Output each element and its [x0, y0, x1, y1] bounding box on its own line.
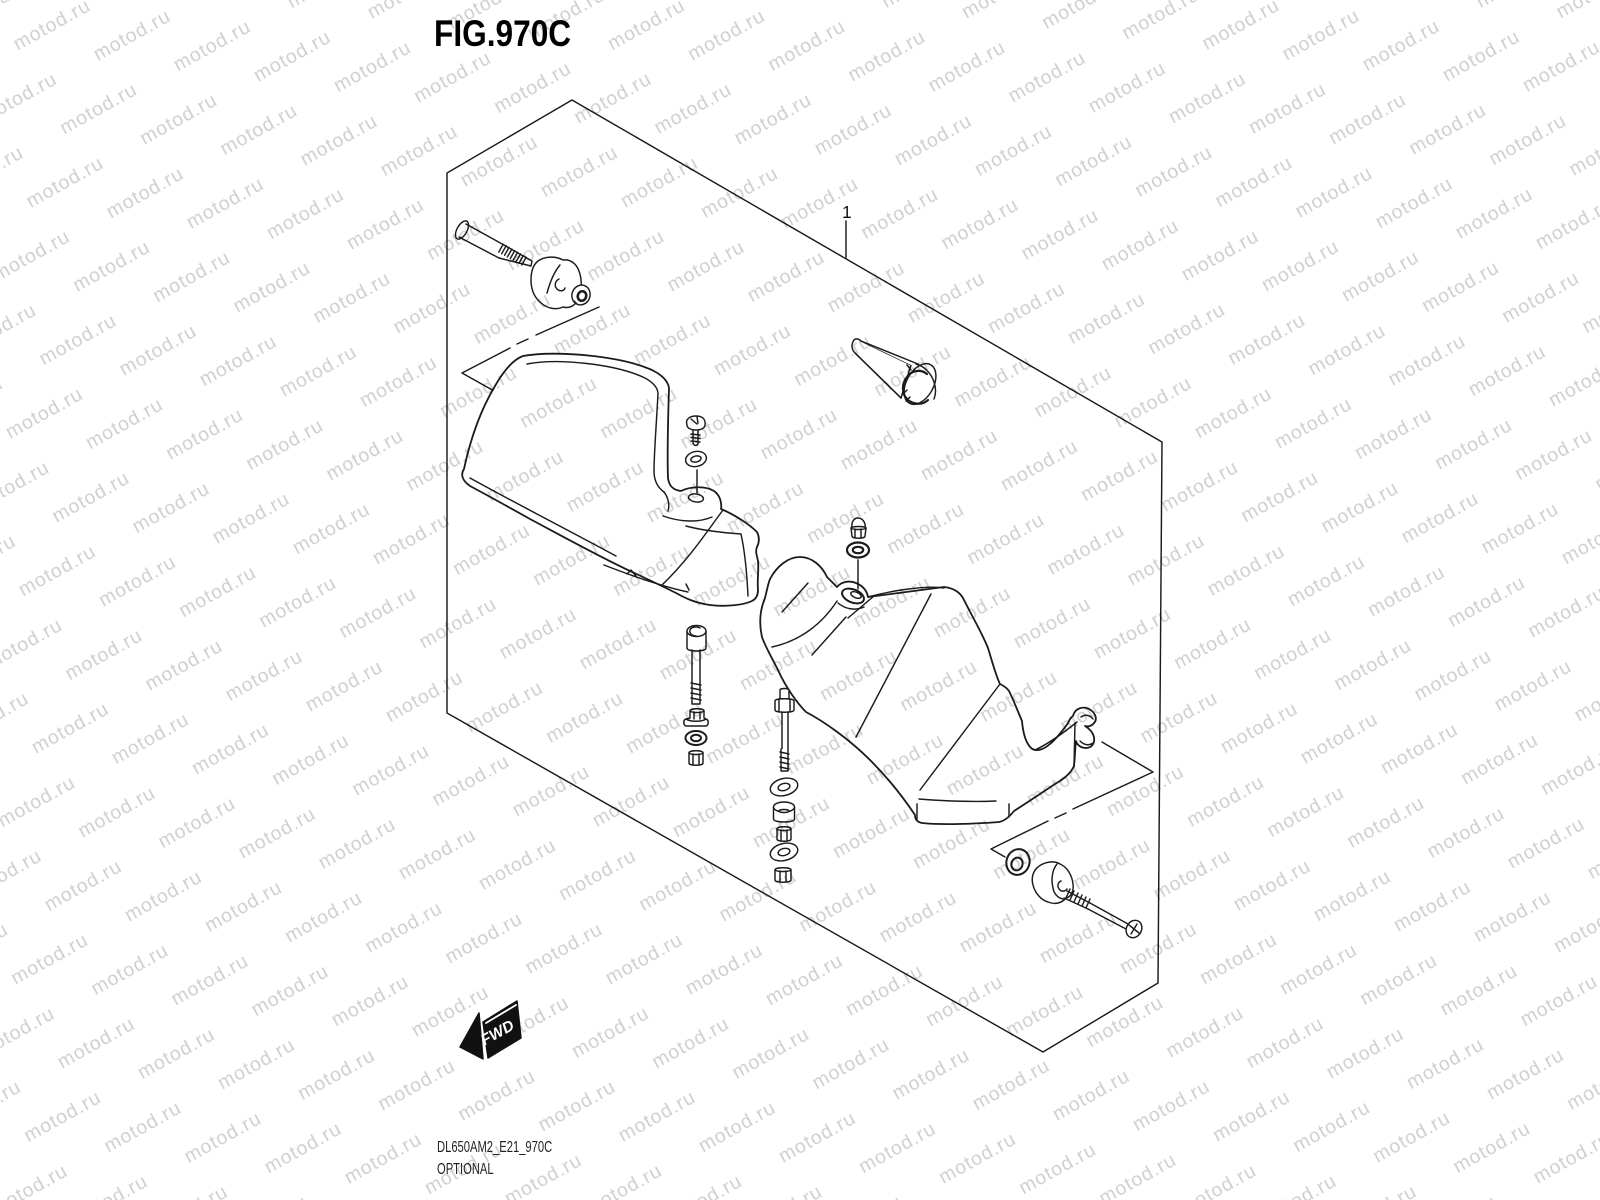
svg-text:1: 1: [842, 202, 852, 222]
